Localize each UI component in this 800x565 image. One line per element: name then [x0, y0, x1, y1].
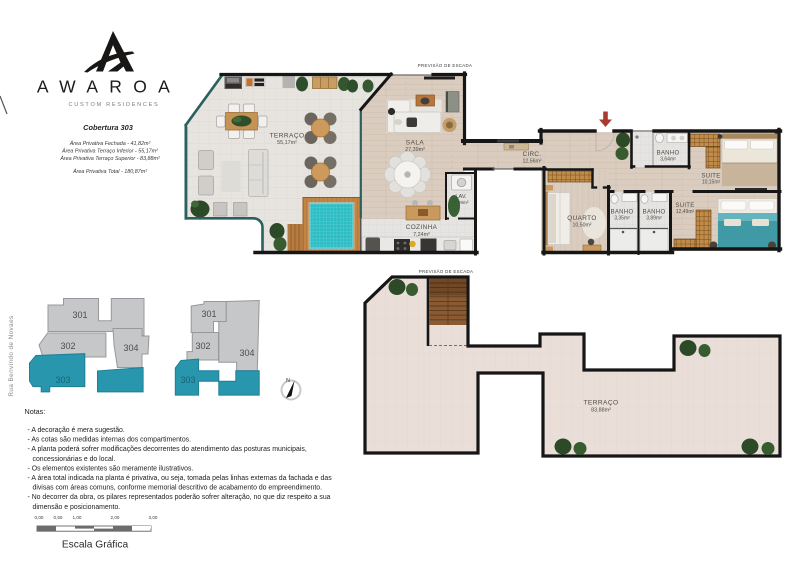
- svg-text:302: 302: [60, 341, 75, 351]
- svg-text:3,00: 3,00: [149, 515, 158, 520]
- svg-text:N: N: [286, 378, 290, 384]
- svg-text:- A decoração é mera sugestão.: - A decoração é mera sugestão.: [28, 427, 125, 434]
- svg-text:Rua Benvindo de Novaes: Rua Benvindo de Novaes: [8, 315, 15, 396]
- svg-text:CIRC.: CIRC.: [523, 151, 542, 158]
- svg-text:AWAROA: AWAROA: [37, 77, 181, 97]
- svg-text:0,99m²: 0,99m²: [454, 200, 469, 206]
- svg-text:- Os elementos existentes são: - Os elementos existentes são meramente …: [28, 465, 194, 472]
- svg-text:PREVISÃO DE ESCADA: PREVISÃO DE ESCADA: [418, 63, 472, 68]
- svg-text:Área Privativa Fechada - 41,82: Área Privativa Fechada - 41,82m²: [69, 140, 151, 147]
- svg-text:303: 303: [55, 375, 70, 385]
- svg-text:303: 303: [180, 375, 195, 385]
- svg-text:3,35m²: 3,35m²: [614, 216, 630, 222]
- svg-text:LAV.: LAV.: [455, 194, 467, 200]
- svg-text:0,00: 0,00: [35, 515, 44, 520]
- svg-text:TERRAÇO: TERRAÇO: [269, 133, 304, 140]
- svg-text:- A área total indicada na pla: - A área total indicada na planta é priv…: [28, 475, 333, 482]
- svg-text:304: 304: [123, 343, 138, 353]
- svg-text:Área Privativa Terraço Inferio: Área Privativa Terraço Inferior - 55,17m…: [61, 148, 158, 155]
- svg-text:3,64m²: 3,64m²: [660, 157, 676, 163]
- svg-text:- No decorrer da obra, os pila: - No decorrer da obra, os pilares repres…: [28, 494, 331, 501]
- svg-text:SALA: SALA: [406, 140, 425, 147]
- svg-text:12,56m²: 12,56m²: [522, 159, 541, 165]
- svg-text:COZINHA: COZINHA: [406, 224, 438, 231]
- svg-text:10,15m²: 10,15m²: [702, 180, 721, 186]
- svg-text:Área Privativa Terraço Superio: Área Privativa Terraço Superior - 83,88m…: [59, 155, 160, 162]
- svg-text:- As cotas são medidas interna: - As cotas são medidas internas dos comp…: [28, 437, 192, 444]
- svg-text:divisas com áreas comuns, conf: divisas com áreas comuns, conforme memor…: [33, 485, 323, 492]
- svg-text:PREVISÃO DE ESCADA: PREVISÃO DE ESCADA: [419, 269, 473, 274]
- svg-text:10,50m²: 10,50m²: [572, 223, 591, 229]
- svg-text:Escala Gráfica: Escala Gráfica: [62, 540, 129, 551]
- svg-text:0,50: 0,50: [54, 515, 63, 520]
- svg-text:Notas:: Notas:: [25, 407, 46, 416]
- svg-text:Área Privativa Total - 180,87m: Área Privativa Total - 180,87m²: [72, 168, 147, 175]
- svg-text:2,00: 2,00: [111, 515, 120, 520]
- svg-text:55,17m²: 55,17m²: [277, 140, 297, 146]
- svg-text:83,88m²: 83,88m²: [591, 408, 611, 414]
- svg-text:301: 301: [72, 310, 87, 320]
- svg-text:Cobertura 303: Cobertura 303: [83, 123, 134, 132]
- svg-text:- A planta poderá sofrer modif: - A planta poderá sofrer modificações de…: [28, 446, 307, 453]
- svg-text:27,39m²: 27,39m²: [405, 147, 425, 153]
- svg-text:301: 301: [201, 309, 216, 319]
- svg-text:304: 304: [239, 348, 254, 358]
- svg-text:CUSTOM RESIDENCES: CUSTOM RESIDENCES: [69, 102, 160, 108]
- svg-text:TERRAÇO: TERRAÇO: [583, 400, 618, 407]
- svg-text:302: 302: [195, 341, 210, 351]
- svg-text:7,24m²: 7,24m²: [413, 232, 430, 238]
- svg-text:dimensão e posicionamento.: dimensão e posicionamento.: [33, 504, 121, 511]
- svg-text:1,00: 1,00: [73, 515, 82, 520]
- svg-text:12,49m²: 12,49m²: [676, 209, 695, 215]
- svg-text:3,89m²: 3,89m²: [646, 216, 662, 222]
- svg-text:QUARTO: QUARTO: [567, 215, 597, 222]
- svg-text:concessionárias e do local.: concessionárias e do local.: [33, 456, 116, 463]
